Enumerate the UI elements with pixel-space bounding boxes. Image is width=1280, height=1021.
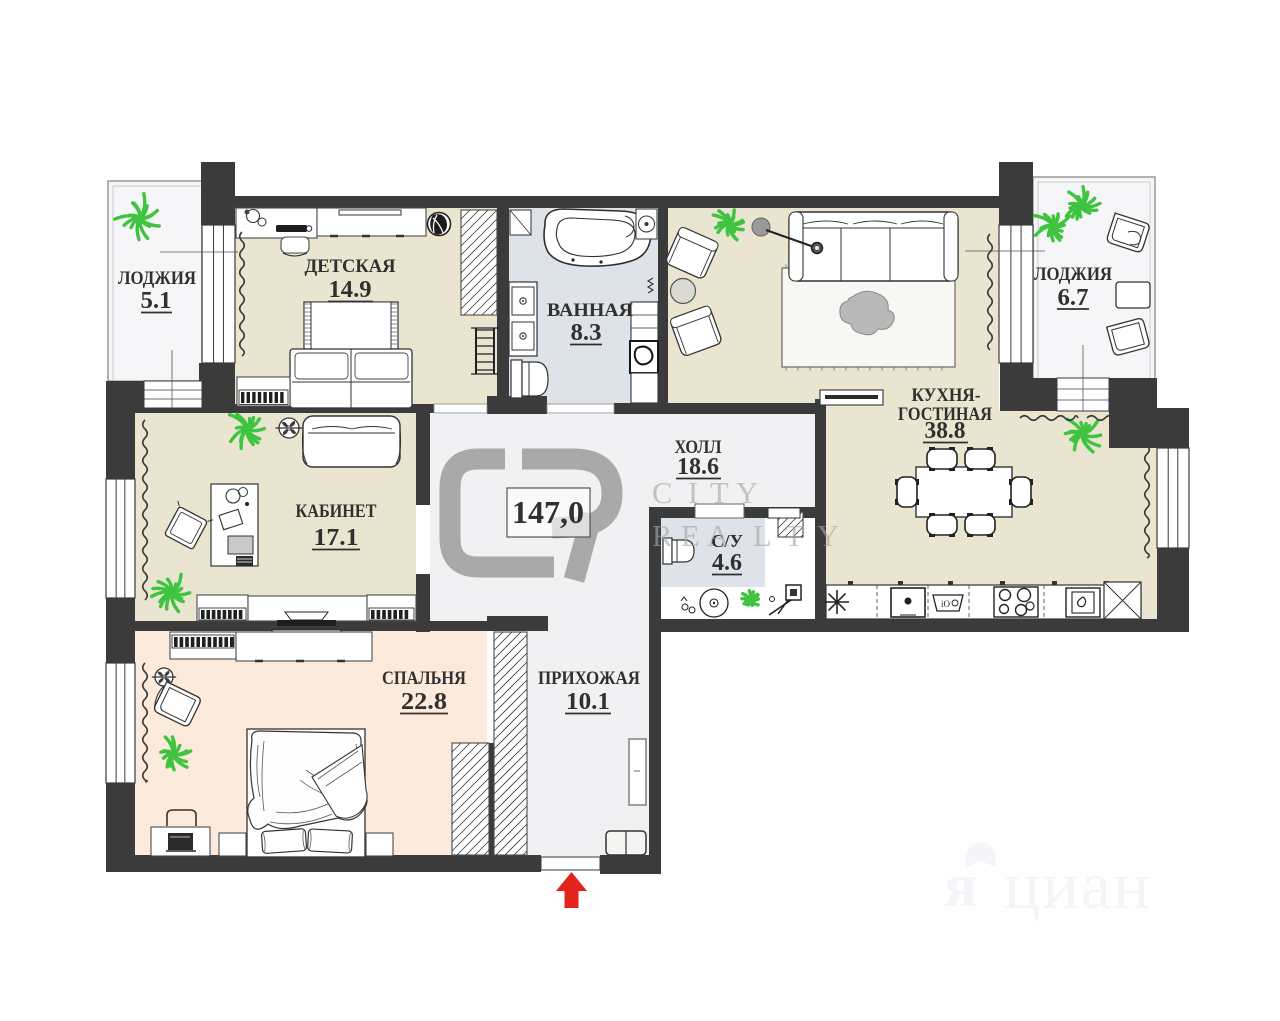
svg-text:A: A	[707, 519, 729, 553]
svg-text:КУХНЯ-: КУХНЯ-	[912, 386, 981, 406]
svg-text:17.1: 17.1	[314, 525, 359, 551]
svg-text:E: E	[681, 519, 700, 553]
svg-text:ЛОДЖИЯ: ЛОДЖИЯ	[1034, 265, 1113, 285]
svg-text:ПРИХОЖАЯ: ПРИХОЖАЯ	[538, 669, 641, 689]
svg-text:R: R	[652, 519, 673, 553]
svg-text:iO: iO	[941, 599, 951, 609]
svg-text:38.8: 38.8	[925, 418, 966, 444]
svg-text:L: L	[753, 519, 772, 553]
svg-text:СПАЛЬНЯ: СПАЛЬНЯ	[382, 669, 467, 689]
svg-text:147,0: 147,0	[512, 495, 584, 530]
svg-text:T: T	[785, 519, 804, 553]
svg-text:КАБИНЕТ: КАБИНЕТ	[296, 502, 378, 522]
svg-text:22.8: 22.8	[401, 689, 447, 715]
svg-text:6.7: 6.7	[1058, 285, 1089, 311]
svg-text:5.1: 5.1	[141, 288, 172, 314]
svg-text:8.3: 8.3	[571, 320, 602, 346]
svg-text:ВАННАЯ: ВАННАЯ	[547, 301, 634, 321]
svg-text:Y: Y	[817, 519, 839, 553]
svg-text:ДЕТСКАЯ: ДЕТСКАЯ	[305, 257, 397, 277]
svg-text:Y: Y	[736, 476, 758, 510]
svg-text:I: I	[688, 476, 698, 510]
svg-text:4.6: 4.6	[712, 550, 742, 576]
svg-text:T: T	[710, 476, 729, 510]
svg-text:14.9: 14.9	[329, 277, 372, 303]
svg-text:10.1: 10.1	[566, 689, 610, 715]
svg-text:C: C	[652, 476, 672, 510]
svg-text:ЛОДЖИЯ: ЛОДЖИЯ	[118, 269, 197, 289]
svg-text:циан: циан	[1004, 847, 1151, 923]
